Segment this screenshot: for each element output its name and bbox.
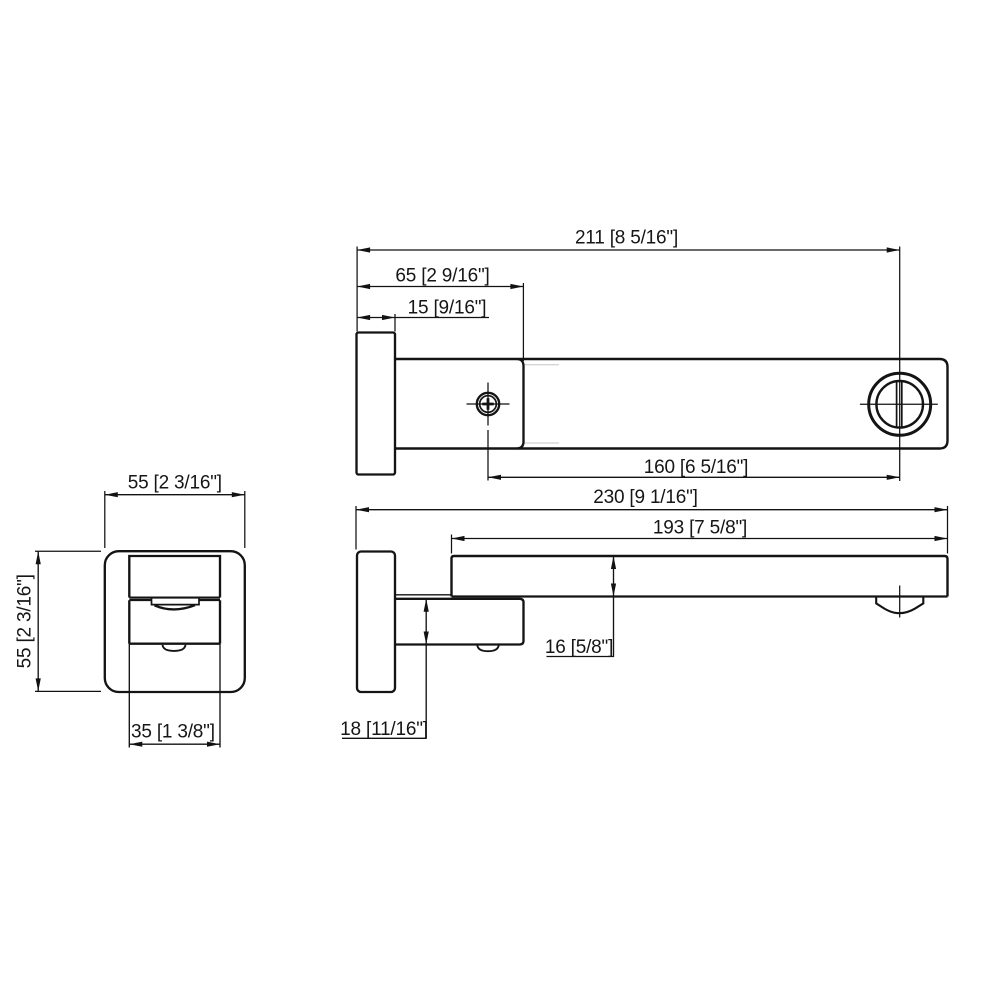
svg-text:193 [7 5/8"]: 193 [7 5/8"] (653, 518, 747, 539)
svg-text:16 [5/8"]: 16 [5/8"] (545, 637, 613, 658)
svg-text:55 [2 3/16"]: 55 [2 3/16"] (15, 574, 36, 668)
svg-text:18 [11/16"]: 18 [11/16"] (340, 719, 428, 740)
svg-text:35 [1 3/8"]: 35 [1 3/8"] (131, 722, 215, 743)
svg-text:230 [9 1/16"]: 230 [9 1/16"] (593, 487, 698, 508)
svg-text:65 [2 9/16"]: 65 [2 9/16"] (395, 266, 489, 287)
svg-text:55 [2 3/16"]: 55 [2 3/16"] (128, 473, 222, 494)
svg-text:15 [9/16"]: 15 [9/16"] (408, 298, 487, 319)
svg-text:211 [8 5/16"]: 211 [8 5/16"] (575, 228, 678, 249)
svg-text:160 [6 5/16"]: 160 [6 5/16"] (644, 457, 749, 478)
